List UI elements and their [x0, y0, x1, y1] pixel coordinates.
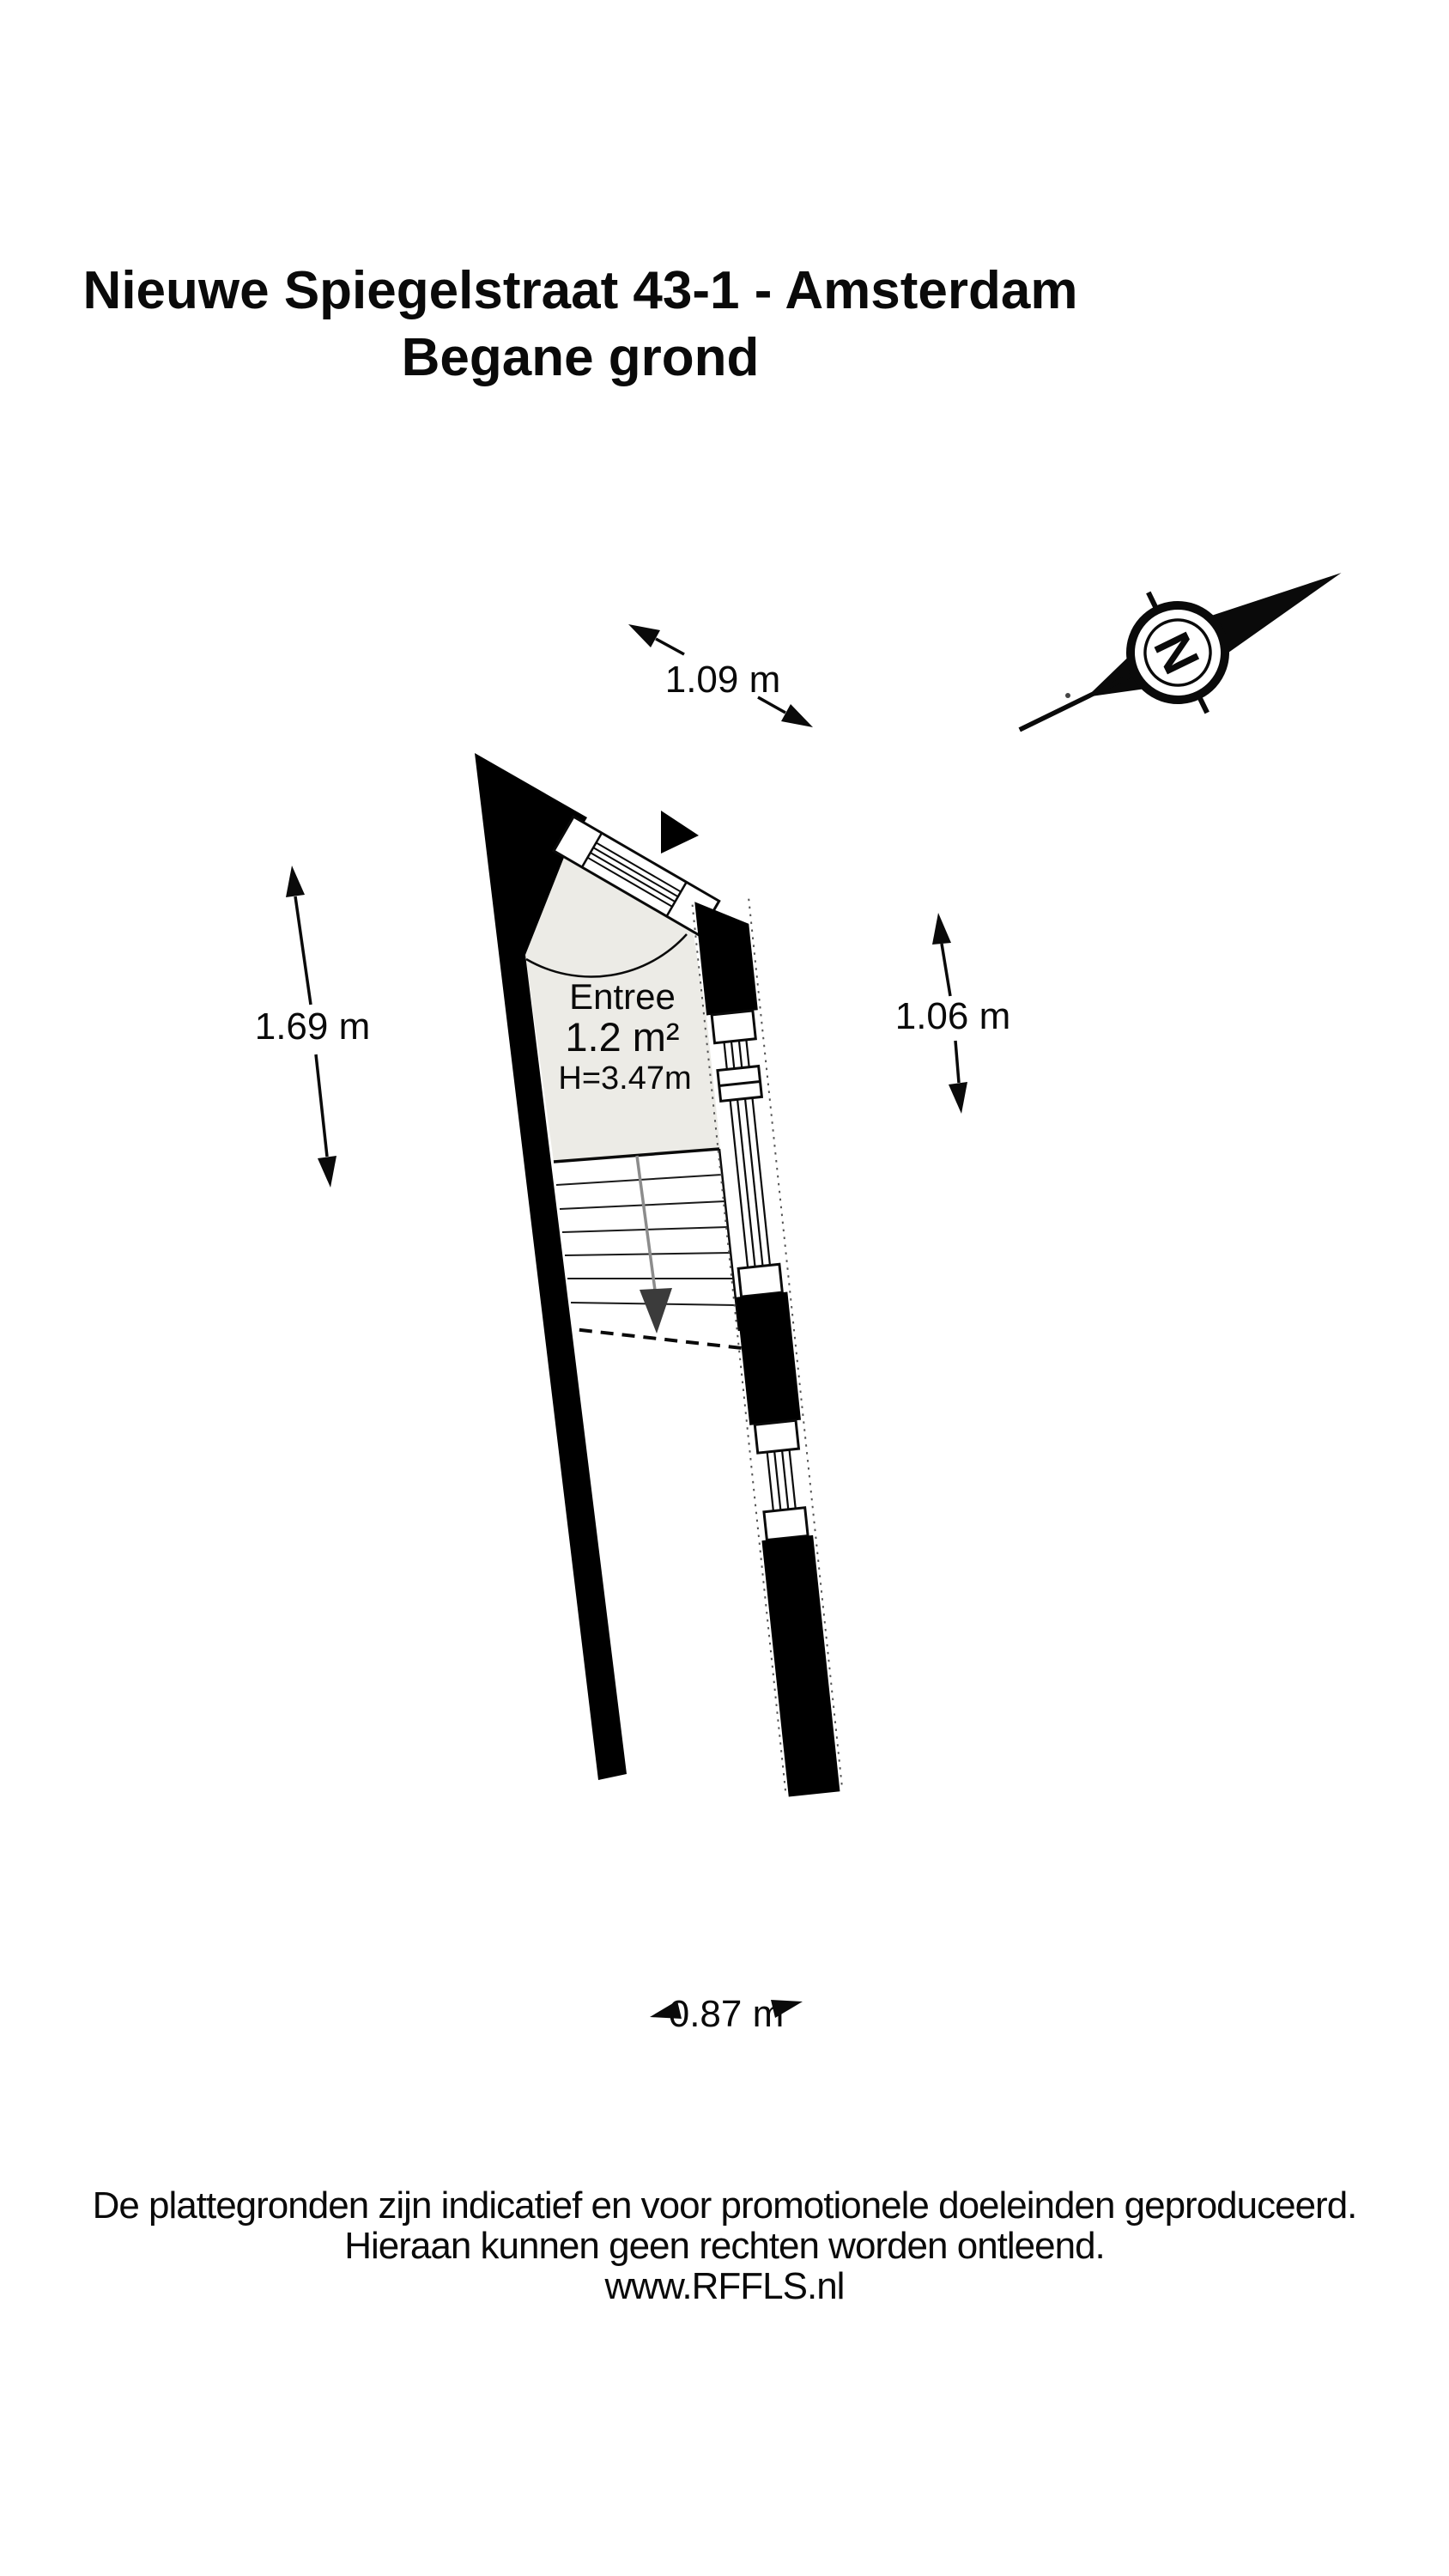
disclaimer: De plattegronden zijn indicatief en voor… — [0, 2185, 1449, 2306]
wall-block-middle — [737, 1291, 801, 1425]
compass-tail-line — [1020, 675, 1131, 730]
arrowhead-down-right-icon — [781, 704, 813, 727]
disclaimer-website: www.RFFLS.nl — [0, 2266, 1449, 2306]
disclaimer-line-1: De plattegronden zijn indicatief en voor… — [0, 2185, 1449, 2226]
window-transom — [764, 1508, 808, 1540]
wall-block-bottom — [761, 1535, 840, 1797]
arrowhead-up-icon — [932, 913, 951, 945]
stray-mark — [1065, 693, 1070, 698]
arrowhead-down-icon — [949, 1082, 967, 1114]
dimension-left: 1.69 m — [255, 866, 371, 1188]
arrowhead-up-left-icon — [628, 624, 660, 647]
floorplan-page: Nieuwe Spiegelstraat 43-1 - Amsterdam Be… — [0, 0, 1449, 2576]
dimension-right-label: 1.06 m — [895, 995, 1011, 1037]
dimension-bottom: 0.87 m — [650, 1993, 803, 2035]
dimension-top-label: 1.09 m — [665, 659, 781, 701]
window-lower — [751, 1420, 811, 1540]
arrowhead-up-icon — [286, 866, 305, 897]
disclaimer-line-2: Hieraan kunnen geen rechten worden ontle… — [0, 2226, 1449, 2266]
dimension-left-label: 1.69 m — [255, 1005, 371, 1048]
staircase — [554, 1149, 739, 1334]
room-area-label: 1.2 m² — [565, 1014, 679, 1060]
arrowhead-down-icon — [318, 1156, 336, 1188]
room-height-label: H=3.47m — [558, 1060, 691, 1097]
entrance-marker-icon — [661, 811, 699, 854]
room-labels: Entree 1.2 m² H=3.47m — [558, 976, 691, 1097]
wall-block-top — [694, 896, 758, 1016]
window-transom — [755, 1420, 798, 1453]
window-transom — [712, 1011, 755, 1043]
north-compass: N — [991, 513, 1371, 790]
dimension-bottom-label: 0.87 m — [669, 1993, 785, 2035]
dimension-top: 1.09 m — [628, 624, 813, 727]
room-name-label: Entree — [569, 976, 676, 1017]
dimension-right: 1.06 m — [895, 913, 1011, 1114]
window-transom — [738, 1264, 782, 1297]
